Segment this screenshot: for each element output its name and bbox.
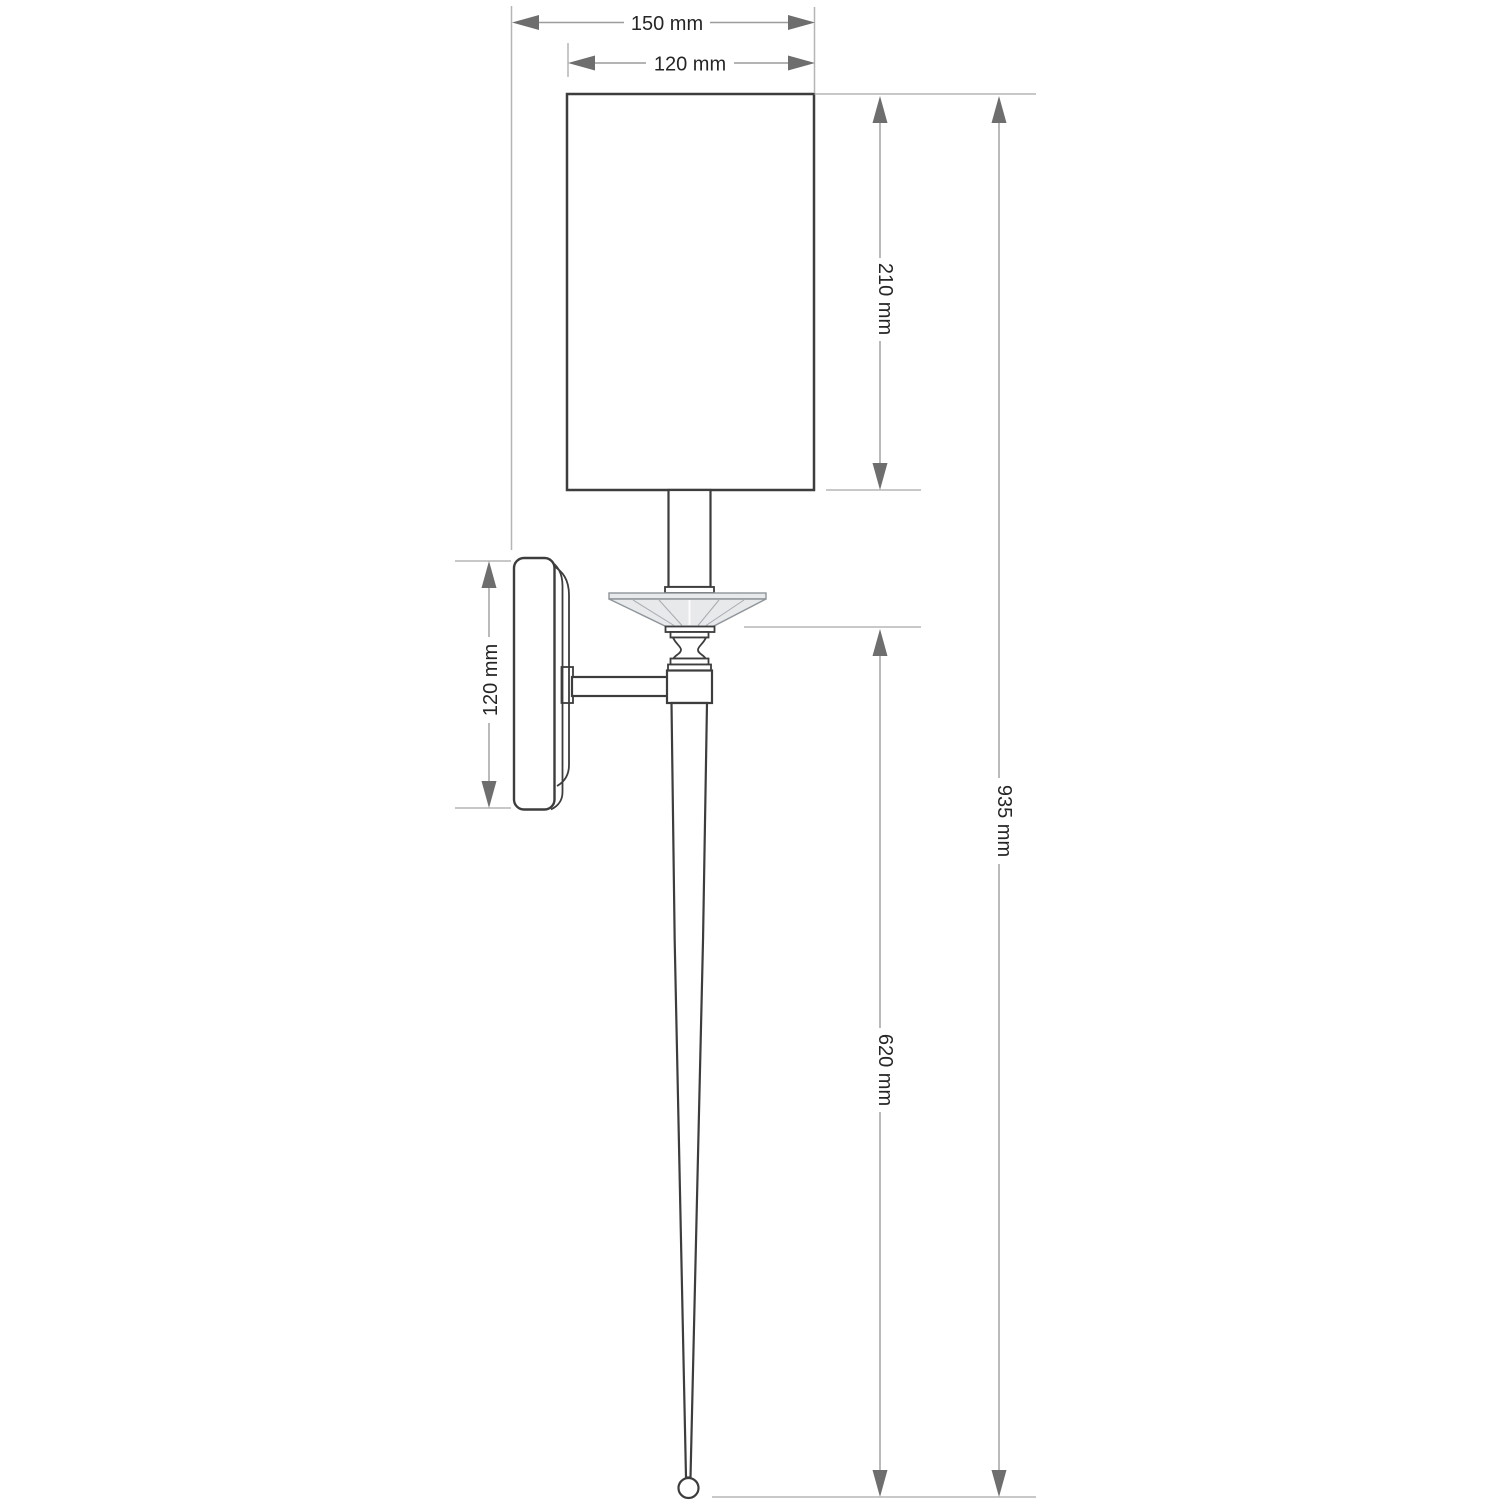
finial-ball — [679, 1478, 699, 1498]
arrow-up-icon — [873, 629, 888, 656]
arrow-up-icon — [482, 561, 497, 588]
arrow-up-icon — [873, 96, 888, 123]
dim-label-backplate-height: 120 mm — [480, 644, 502, 716]
arrow-down-icon — [873, 463, 888, 490]
drawing-canvas: 150 mm 120 mm 210 mm — [0, 0, 1500, 1500]
plate-body — [514, 558, 555, 810]
candle-tube — [669, 490, 711, 587]
arrow-left-icon — [512, 15, 539, 30]
candle-tube-collar — [665, 587, 714, 593]
sconce-dimension-drawing: 150 mm 120 mm 210 mm — [0, 0, 1500, 1500]
wall-plate — [514, 558, 573, 810]
stem-knob — [673, 638, 706, 659]
tapered-stem — [672, 703, 708, 1478]
stem-rings — [666, 627, 715, 638]
mounting-arm — [572, 677, 669, 696]
fixture — [514, 94, 814, 1498]
dim-backplate-height: 120 mm — [455, 561, 511, 808]
dim-shade-height: 210 mm — [815, 94, 1037, 490]
knob-base-disc — [671, 659, 709, 665]
dim-stem-height: 620 mm — [744, 627, 921, 1497]
dim-label-overall-height: 935 mm — [993, 785, 1015, 857]
arrow-right-icon — [788, 56, 815, 71]
stem-block — [667, 671, 712, 704]
bobeche-rim — [609, 593, 766, 599]
arrow-up-icon — [992, 96, 1007, 123]
dim-label-shade-width: 120 mm — [654, 54, 726, 76]
bobeche-cone — [609, 599, 766, 627]
arrow-down-icon — [482, 781, 497, 808]
lampshade — [567, 94, 814, 490]
crystal-bobeche — [609, 593, 766, 627]
arrow-right-icon — [788, 15, 815, 30]
arrow-down-icon — [873, 1470, 888, 1497]
dim-shade-width: 120 mm — [568, 43, 815, 77]
arrow-down-icon — [992, 1470, 1007, 1497]
dim-label-overall-depth: 150 mm — [631, 13, 703, 35]
dim-label-shade-height: 210 mm — [874, 263, 896, 335]
dim-label-stem-height: 620 mm — [874, 1034, 896, 1106]
arrow-left-icon — [568, 56, 595, 71]
